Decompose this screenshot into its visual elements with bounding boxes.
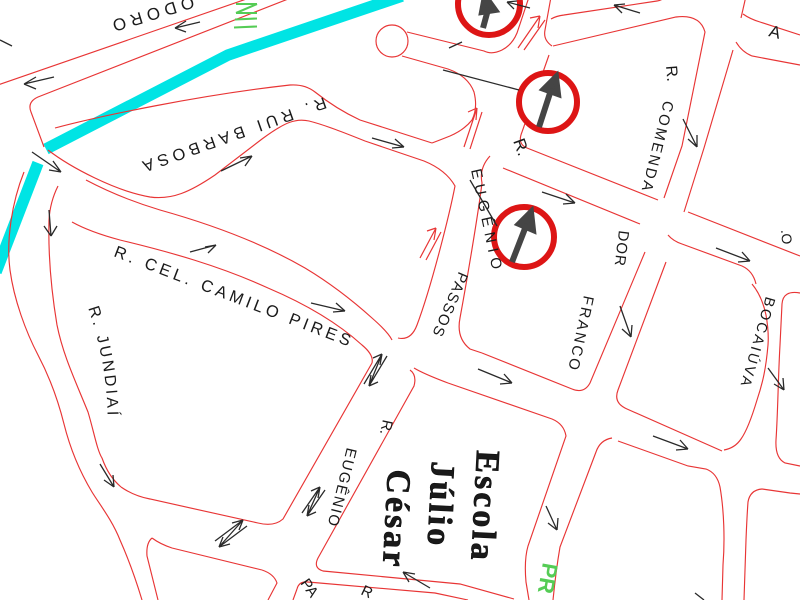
svg-text:EUGÊNIO: EUGÊNIO	[323, 446, 359, 529]
svg-text:R.: R.	[662, 65, 680, 82]
svg-text:R. RUI BARBOSA: R. RUI BARBOSA	[136, 93, 329, 176]
svg-text:FRANCO: FRANCO	[564, 294, 597, 374]
svg-text:DOR: DOR	[611, 230, 632, 268]
svg-text:PASSOS: PASSOS	[428, 269, 471, 340]
svg-text:Júlio: Júlio	[419, 461, 460, 550]
svg-text:PA: PA	[297, 576, 322, 600]
svg-text:COMENDA: COMENDA	[637, 99, 676, 195]
svg-text:BOCAIÚVA: BOCAIÚVA	[736, 295, 778, 391]
svg-text:Escola: Escola	[463, 450, 506, 564]
svg-text:PR: PR	[533, 561, 563, 596]
svg-text:R. JUNDIAÍ: R. JUNDIAÍ	[84, 304, 122, 419]
svg-text:R.: R.	[509, 136, 533, 158]
svg-text:César: César	[375, 469, 417, 571]
svg-text:R: R	[358, 582, 375, 600]
svg-text:.O: .O	[778, 229, 795, 245]
svg-text:R. CEL. CAMILO PIRES: R. CEL. CAMILO PIRES	[112, 243, 357, 351]
svg-text:R.: R.	[376, 418, 396, 436]
